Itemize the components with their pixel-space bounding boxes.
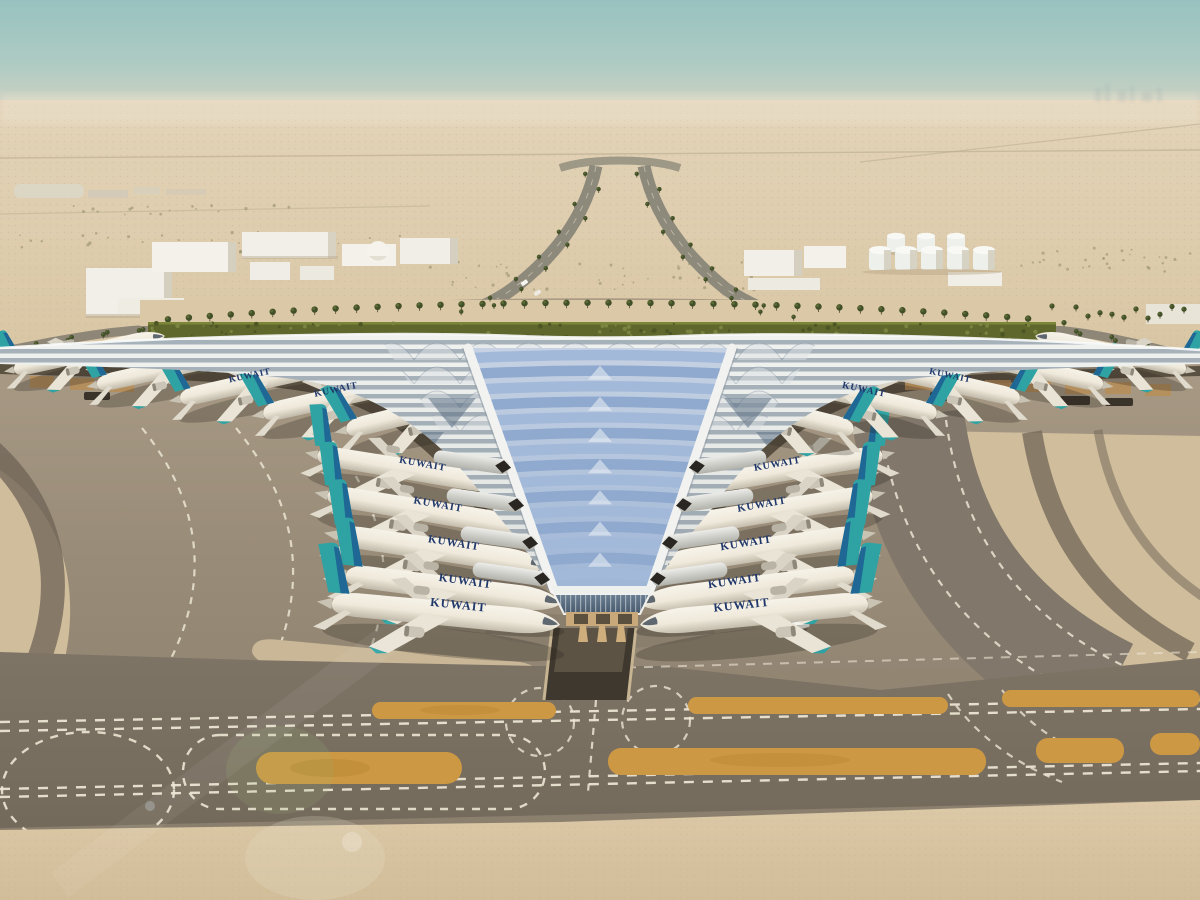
scrub-dot xyxy=(1122,259,1124,261)
scrub-dot xyxy=(30,239,33,242)
scrub-dot xyxy=(475,287,477,289)
scrub-dot xyxy=(1106,262,1109,265)
scrub-dot xyxy=(429,266,432,269)
scrub-dot xyxy=(677,267,680,270)
scrub-dot xyxy=(211,239,213,241)
hedge-dot xyxy=(1022,329,1026,333)
scrub-dot xyxy=(1082,267,1084,269)
scrub-dot xyxy=(81,234,84,237)
scrub-dot xyxy=(21,246,24,249)
hedge-dot xyxy=(673,323,675,325)
hedge-dot xyxy=(303,325,307,329)
scrub-dot xyxy=(95,232,98,235)
hedge-dot xyxy=(538,324,543,329)
hedge-dot xyxy=(979,333,981,335)
hedge-dot xyxy=(814,324,817,327)
hedge-dot xyxy=(191,335,193,337)
hedge-dot xyxy=(278,325,281,328)
scrub-dot xyxy=(507,274,510,277)
hedge-dot xyxy=(880,322,882,324)
scrub-dot xyxy=(1143,256,1145,258)
scrub-dot xyxy=(149,213,151,215)
scrub-dot xyxy=(73,205,75,207)
scrub-dot xyxy=(1163,270,1166,273)
hedge-dot xyxy=(970,325,973,328)
scrub-dot xyxy=(1066,268,1069,271)
hedge-dot xyxy=(460,322,463,325)
scrub-dot xyxy=(178,239,180,241)
scrub-dot xyxy=(622,267,624,269)
scrub-dot xyxy=(159,213,162,216)
hedge-dot xyxy=(639,329,642,332)
scrub-dot xyxy=(741,261,743,263)
hedge-dot xyxy=(719,326,723,330)
hedge-dot xyxy=(312,323,314,325)
hedge-dot xyxy=(358,322,362,326)
scrub-dot xyxy=(338,243,340,245)
scrub-dot xyxy=(1173,258,1176,261)
scrub-dot xyxy=(1120,249,1123,252)
hedge-dot xyxy=(610,330,612,332)
scrub-dot xyxy=(500,263,502,265)
hedge-dot xyxy=(221,331,223,333)
scrub-dot xyxy=(107,237,109,239)
scrub-dot xyxy=(82,210,85,213)
hedge-dot xyxy=(150,327,153,330)
hedge-dot xyxy=(246,324,250,328)
skylight-strip xyxy=(506,449,694,452)
scrub-dot xyxy=(1108,267,1111,270)
scrub-dot xyxy=(1032,261,1034,263)
scrub-dot xyxy=(1106,253,1109,256)
scrub-dot xyxy=(19,235,21,237)
skylight-strip xyxy=(528,511,672,514)
scrub-dot xyxy=(230,231,233,234)
hedge-dot xyxy=(1033,330,1037,334)
scrub-dot xyxy=(1165,256,1168,259)
hedge-dot xyxy=(627,325,631,329)
hedge-dot xyxy=(807,327,811,331)
scrub-dot xyxy=(147,206,149,208)
scrub-dot xyxy=(545,287,548,290)
hedge-dot xyxy=(600,324,604,328)
skylight-strip xyxy=(484,386,716,389)
hedge-dot xyxy=(316,322,320,326)
hedge-dot xyxy=(627,330,631,334)
scrub-dot xyxy=(210,204,213,207)
scrub-dot xyxy=(142,241,144,243)
scrub-dot xyxy=(1148,267,1151,270)
scrub-dot xyxy=(1020,265,1022,267)
hedge-dot xyxy=(919,323,922,326)
hedge-dot xyxy=(559,324,562,327)
hedge-dot xyxy=(225,333,227,335)
scrub-dot xyxy=(742,287,745,290)
hedge-dot xyxy=(713,330,717,334)
scrub-dot xyxy=(578,263,581,266)
hedge-dot xyxy=(728,329,730,331)
horizon-haze xyxy=(0,94,1200,124)
hedge-dot xyxy=(849,332,851,334)
scrub-dot xyxy=(1042,259,1044,261)
scrub-dot xyxy=(533,289,535,291)
hedge-dot xyxy=(289,327,292,330)
scrub-dot xyxy=(506,266,508,268)
hedge-dot xyxy=(979,322,983,326)
skylight-strip xyxy=(473,355,727,358)
scrub-dot xyxy=(1058,263,1061,266)
scrub-dot xyxy=(703,286,706,289)
scrub-dot xyxy=(1102,257,1105,260)
rendering-canvas: KUWAITKUWAITKUWAITKUWAITKUWAITKUWAITKUWA… xyxy=(0,0,1200,900)
hedge-dot xyxy=(623,327,627,331)
scrub-dot xyxy=(677,265,679,267)
scrub-dot xyxy=(598,279,600,281)
scrub-dot xyxy=(624,275,626,277)
hedge-dot xyxy=(230,330,233,333)
scrub-dot xyxy=(1088,265,1090,267)
scrub-dot xyxy=(124,214,126,216)
hedge-dot xyxy=(548,323,551,326)
scrub-dot xyxy=(622,284,624,286)
scrub-dot xyxy=(452,281,455,284)
hedge-dot xyxy=(154,321,159,326)
scrub-dot xyxy=(465,277,467,279)
scrub-dot xyxy=(478,265,480,267)
hedge-dot xyxy=(826,325,831,330)
scrub-dot xyxy=(672,276,675,279)
scrub-dot xyxy=(217,210,219,212)
scrub-dot xyxy=(599,282,602,285)
scrub-dot xyxy=(451,284,453,286)
scrub-dot xyxy=(128,208,131,211)
scrub-dot xyxy=(632,282,634,284)
hedge-dot xyxy=(965,331,969,335)
hedge-dot xyxy=(801,329,804,332)
airport-aerial-rendering: KUWAITKUWAITKUWAITKUWAITKUWAITKUWAITKUWA… xyxy=(0,0,1200,900)
scrub-dot xyxy=(91,207,94,210)
hedge-dot xyxy=(1025,324,1027,326)
hedge-dot xyxy=(651,330,653,332)
scrub-dot xyxy=(96,210,98,212)
skylight-strip xyxy=(495,417,705,420)
scrub-dot xyxy=(1084,259,1087,262)
scrub-dot xyxy=(161,234,163,236)
hedge-dot xyxy=(215,325,218,328)
scrub-dot xyxy=(614,288,616,290)
skylight-strip xyxy=(517,480,683,483)
hedge-dot xyxy=(985,331,988,334)
scrub-dot xyxy=(195,208,197,210)
hedge-dot xyxy=(833,322,837,326)
hedge-dot xyxy=(985,324,989,328)
hedge-dot xyxy=(688,329,692,333)
scrub-dot xyxy=(1129,254,1131,256)
scrub-dot xyxy=(698,277,700,279)
hedge-dot xyxy=(665,329,669,333)
scrub-dot xyxy=(273,204,276,207)
scrub-dot xyxy=(491,283,494,286)
hedge-dot xyxy=(1027,324,1030,327)
hedge-dot xyxy=(391,322,395,326)
scrub-dot xyxy=(1159,256,1161,258)
skylight-strip xyxy=(550,573,650,576)
scrub-dot xyxy=(287,206,290,209)
hedge-dot xyxy=(209,322,212,325)
scrub-dot xyxy=(238,242,240,244)
scrub-dot xyxy=(1039,261,1041,263)
hedge-dot xyxy=(1000,332,1005,337)
scrub-dot xyxy=(1189,252,1192,255)
hedge-dot xyxy=(904,324,908,328)
scrub-dot xyxy=(127,235,130,238)
scrub-dot xyxy=(41,240,43,242)
scrub-dot xyxy=(88,241,91,244)
hedge-dot xyxy=(643,331,645,333)
scrub-dot xyxy=(1131,249,1133,251)
hedge-dot xyxy=(669,332,672,335)
scrub-dot xyxy=(1056,250,1058,252)
hedge-dot xyxy=(615,325,617,327)
scrub-dot xyxy=(169,210,171,212)
scrub-dot xyxy=(496,266,498,268)
scrub-dot xyxy=(610,264,613,267)
hedge-dot xyxy=(175,324,180,329)
hedge-dot xyxy=(338,323,341,326)
scrub-dot xyxy=(647,278,649,280)
scrub-dot xyxy=(244,207,247,210)
hedge-dot xyxy=(837,326,840,329)
hedge-dot xyxy=(884,328,888,332)
scrub-dot xyxy=(191,205,194,208)
scrub-dot xyxy=(679,276,682,279)
scrub-dot xyxy=(1093,247,1096,250)
scrub-dot xyxy=(239,250,242,253)
hedge-dot xyxy=(1000,328,1004,332)
hedge-dot xyxy=(598,330,602,334)
scrub-dot xyxy=(1162,262,1164,264)
hedge-dot xyxy=(254,322,258,326)
fuel-tank-row-front xyxy=(862,246,1002,275)
hedge-dot xyxy=(203,325,205,327)
hedge-dot xyxy=(604,324,608,328)
scrub-dot xyxy=(399,235,401,237)
hedge-dot xyxy=(254,330,257,333)
scrub-dot xyxy=(369,237,371,239)
scrub-dot xyxy=(1041,252,1044,255)
skylight-strip xyxy=(539,542,661,545)
